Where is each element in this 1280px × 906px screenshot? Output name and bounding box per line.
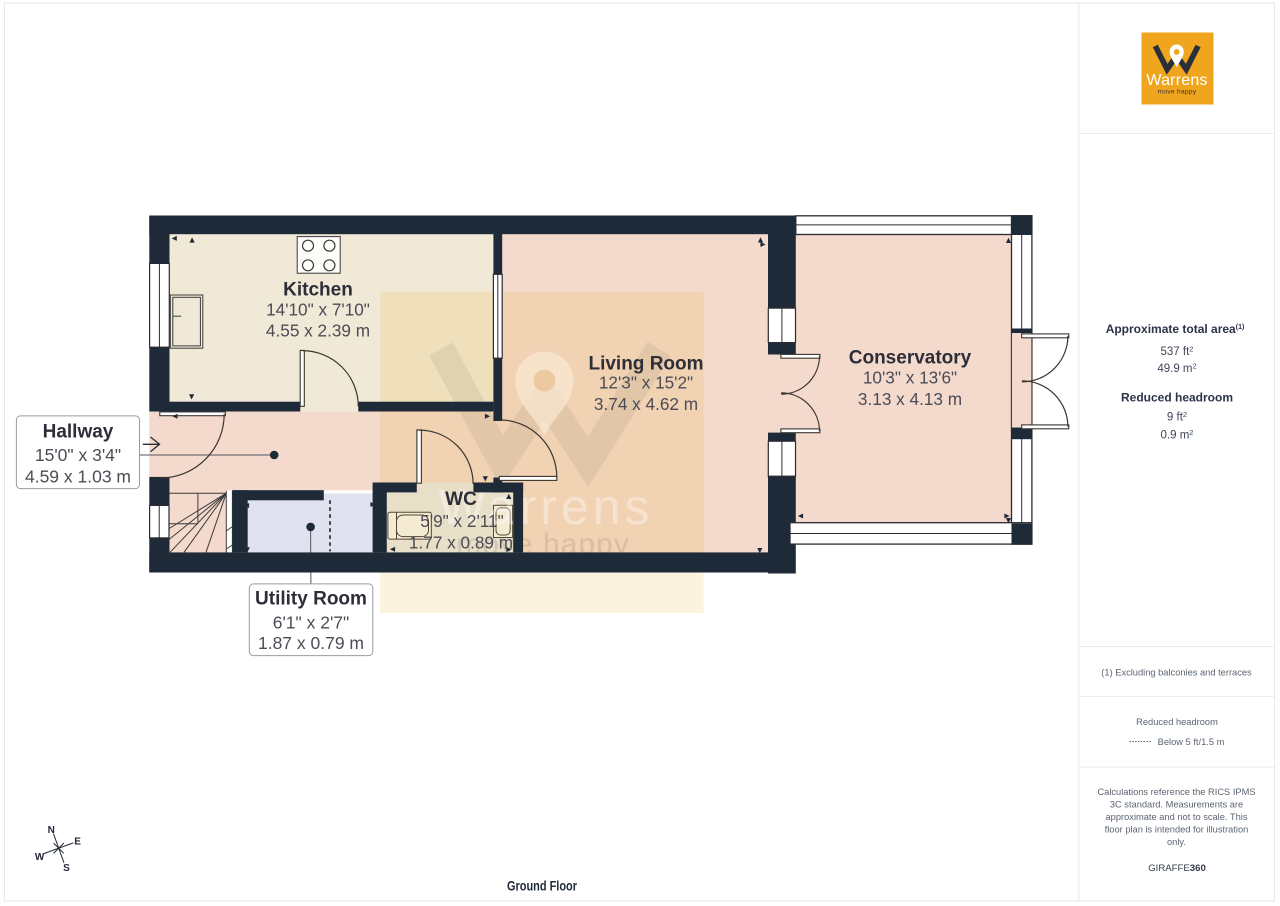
svg-text:3.13 x 4.13 m: 3.13 x 4.13 m	[858, 389, 962, 409]
svg-text:Reduced headroom: Reduced headroom	[1136, 717, 1218, 727]
svg-text:W: W	[35, 852, 45, 863]
svg-text:1.77 x 0.89 m: 1.77 x 0.89 m	[409, 533, 513, 553]
svg-text:4.55 x 2.39 m: 4.55 x 2.39 m	[266, 321, 370, 341]
svg-text:Below 5 ft/1.5 m: Below 5 ft/1.5 m	[1158, 737, 1225, 747]
svg-text:0.9 m2: 0.9 m2	[1161, 428, 1194, 442]
svg-text:S: S	[63, 863, 70, 874]
svg-text:Hallway: Hallway	[43, 422, 114, 443]
svg-text:E: E	[74, 836, 81, 847]
svg-text:3C standard. Measurements are: 3C standard. Measurements are	[1110, 800, 1243, 810]
svg-text:WC: WC	[445, 489, 477, 510]
svg-text:only.: only.	[1167, 837, 1186, 847]
svg-text:1.87 x 0.79 m: 1.87 x 0.79 m	[258, 633, 364, 653]
svg-text:move happy: move happy	[1158, 89, 1197, 96]
svg-text:49.9 m2: 49.9 m2	[1157, 362, 1196, 376]
svg-text:approximate and not to scale.: approximate and not to scale. This	[1106, 812, 1248, 822]
svg-text:3.74 x 4.62 m: 3.74 x 4.62 m	[594, 394, 698, 414]
svg-text:N: N	[48, 825, 55, 836]
svg-text:Conservatory: Conservatory	[849, 348, 972, 369]
svg-text:floor plan is intended for ill: floor plan is intended for illustration	[1105, 825, 1249, 835]
svg-text:(1) Excluding balconies and te: (1) Excluding balconies and terraces	[1101, 668, 1252, 678]
svg-text:4.59 x 1.03 m: 4.59 x 1.03 m	[25, 467, 131, 487]
svg-text:6'1" x 2'7": 6'1" x 2'7"	[273, 613, 350, 633]
svg-text:14'10" x 7'10": 14'10" x 7'10"	[266, 300, 370, 320]
svg-text:GIRAFFE360: GIRAFFE360	[1148, 863, 1206, 874]
svg-text:Kitchen: Kitchen	[283, 280, 353, 301]
svg-text:Living Room: Living Room	[588, 354, 703, 375]
svg-text:12'3" x 15'2": 12'3" x 15'2"	[599, 373, 693, 393]
svg-text:Utility Room: Utility Room	[255, 589, 367, 610]
svg-text:537 ft2: 537 ft2	[1161, 345, 1194, 359]
svg-text:Reduced headroom: Reduced headroom	[1121, 391, 1233, 405]
svg-text:Warrens: Warrens	[1146, 72, 1207, 89]
svg-text:Approximate total area(1): Approximate total area(1)	[1106, 322, 1245, 336]
svg-text:15'0" x 3'4": 15'0" x 3'4"	[35, 445, 121, 465]
svg-text:Ground Floor: Ground Floor	[507, 879, 578, 894]
svg-text:10'3" x 13'6": 10'3" x 13'6"	[863, 368, 957, 388]
svg-text:5'9" x 2'11": 5'9" x 2'11"	[420, 511, 503, 531]
svg-text:Calculations reference the RIC: Calculations reference the RICS IPMS	[1097, 787, 1255, 797]
